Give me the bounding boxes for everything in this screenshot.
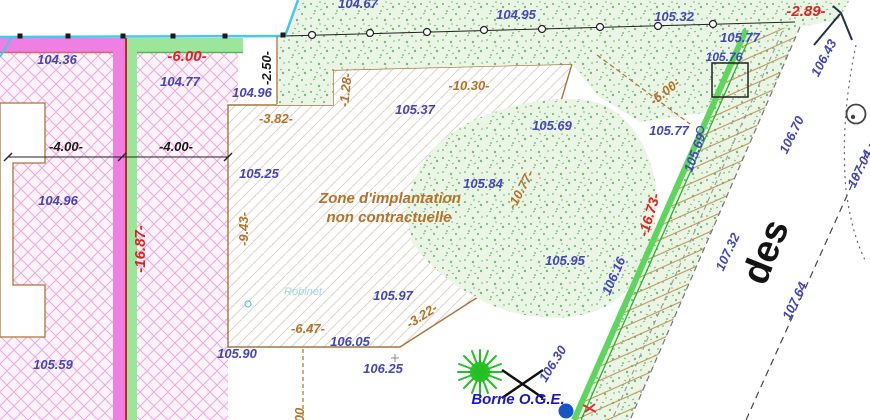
dimension-label: -3.82-: [259, 111, 293, 126]
dimension-label: -10.30-: [448, 78, 489, 93]
zone-label-line2: non contractuelle: [326, 209, 451, 226]
elevation-label: 104.67: [338, 0, 379, 11]
dimension-label: -2.50-: [259, 51, 274, 85]
tap-label: Robinet: [284, 286, 323, 298]
elevation-label: 104.96: [232, 85, 273, 100]
dimension-label: -16.87-: [132, 225, 149, 273]
elevation-label: 104.77: [160, 74, 201, 89]
site-plan: 104.36 104.67 104.95 105.32 105.77 105.7…: [0, 0, 870, 420]
dimension-label: -9.43-: [236, 212, 251, 246]
elevation-label: 105.95: [545, 253, 586, 268]
elevation-label: 105.76: [706, 50, 743, 64]
elevation-label: 105.25: [239, 166, 280, 181]
elevation-label: 106.05: [330, 334, 371, 349]
elevation-label: 104.96: [38, 193, 79, 208]
elevation-label: 105.32: [654, 9, 695, 24]
dimension-label: -4.00-: [49, 139, 83, 154]
elevation-label: 105.37: [395, 102, 436, 117]
site-plan-svg: 104.36 104.67 104.95 105.32 105.77 105.7…: [0, 0, 870, 420]
elevation-label: 105.59: [33, 357, 74, 372]
dimension-label: -2.89-: [786, 3, 825, 20]
dimension-label: -4.00-: [159, 139, 193, 154]
zone-label-line1: Zone d'implantation: [318, 190, 461, 207]
dimension-label: 00: [292, 407, 307, 420]
elevation-label: 104.36: [37, 52, 78, 67]
dimension-label: -6.00-: [167, 48, 206, 65]
elevation-label: 105.77: [649, 123, 690, 138]
tree-icon: [458, 350, 502, 394]
borne-label: Borne O.G.E.: [471, 391, 564, 408]
elevation-label: 106.25: [363, 361, 404, 376]
elevation-label: 105.69: [532, 118, 573, 133]
elevation-label: 105.90: [217, 346, 258, 361]
elevation-label: 105.77: [720, 30, 761, 45]
elevation-label: 105.84: [463, 176, 504, 191]
elevation-label: 105.97: [373, 288, 414, 303]
elevation-label: 104.95: [496, 7, 537, 22]
dimension-label: -6.47-: [291, 321, 325, 336]
